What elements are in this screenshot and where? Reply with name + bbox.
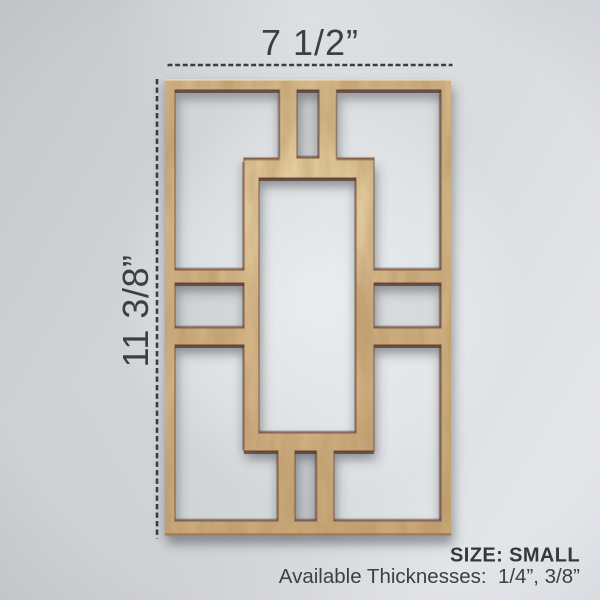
svg-text:SIZE: SMALL: SIZE: SMALL	[450, 545, 580, 567]
svg-text:Available Thicknesses: 1/4”,: Available Thicknesses: 1/4”, 3/8”	[279, 565, 580, 588]
svg-text:11 3/8”: 11 3/8”	[115, 255, 156, 368]
svg-text:7 1/2”: 7 1/2”	[261, 22, 359, 63]
